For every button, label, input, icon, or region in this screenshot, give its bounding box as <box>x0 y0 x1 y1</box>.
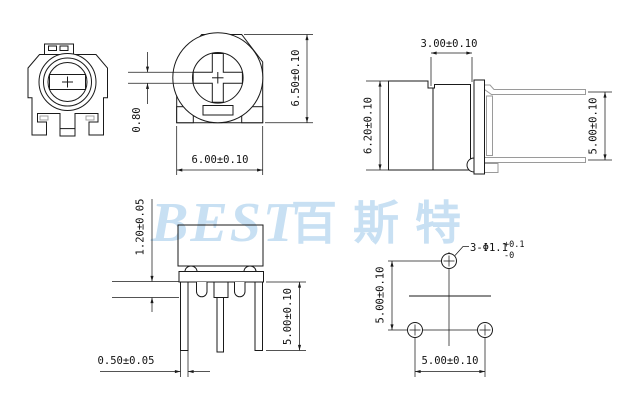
side-pin-middle <box>487 96 493 156</box>
hole-tol-plus: +0.1 <box>504 240 524 250</box>
foot-notch-right <box>86 116 94 120</box>
front-pin-right <box>255 282 263 351</box>
front-bump-left <box>185 266 197 272</box>
side-mounting-plate <box>474 80 485 174</box>
side-pin-top <box>485 85 586 95</box>
dim-width-label: 6.00±0.10 <box>192 154 249 166</box>
dim-pinlen-label: 5.00±0.10 <box>282 288 294 345</box>
dim-footprint-h-label: 5.00±0.10 <box>422 355 479 367</box>
hole-tol-minus: -0 <box>504 251 514 261</box>
view-top: 0.80 6.00±0.10 6.50±0.10 <box>128 33 313 175</box>
technical-drawing: BEST 百斯特 0.80 <box>0 0 623 413</box>
dim-pinwidth-label: 0.50±0.05 <box>98 355 155 367</box>
dim-body-label: 3.00±0.10 <box>421 38 478 50</box>
hole-size-label: 3-Φ1.1 <box>470 242 508 254</box>
dim-slot-label: 0.80 <box>131 107 143 132</box>
front-pin-left <box>181 282 189 351</box>
side-body-outline <box>389 81 471 170</box>
front-hook-right <box>235 282 246 297</box>
watermark: BEST 百斯特 <box>150 192 477 254</box>
foot-notch-left <box>40 116 48 120</box>
side-foot-step <box>485 164 499 173</box>
dim-sideheight-label: 6.20±0.10 <box>363 97 375 154</box>
view-oblique-front <box>28 44 108 136</box>
front-pin-center <box>217 298 224 353</box>
front-pin-center-head <box>214 282 228 298</box>
watermark-latin-text: BEST <box>150 192 300 254</box>
dim-height-label: 6.50±0.10 <box>290 50 302 107</box>
drawing-svg: BEST 百斯特 0.80 <box>0 0 623 413</box>
view-footprint: 3-Φ1.1 +0.1 -0 5.00±0.10 5.00±0.10 <box>375 240 525 377</box>
front-hook-left <box>197 282 208 297</box>
view-side: 3.00±0.10 6.20±0.10 5.00±0.10 <box>363 38 613 174</box>
dim-footprint-v-label: 5.00±0.10 <box>375 267 387 324</box>
watermark-cjk-text: 百斯特 <box>291 198 477 249</box>
top-marking-window <box>203 106 233 116</box>
dim-standoff-label: 1.20±0.05 <box>135 199 147 256</box>
side-pin-bottom <box>485 158 586 163</box>
front-base-plate <box>179 272 264 283</box>
dim-pins-label: 5.00±0.10 <box>588 98 600 155</box>
front-bump-right <box>244 266 256 272</box>
